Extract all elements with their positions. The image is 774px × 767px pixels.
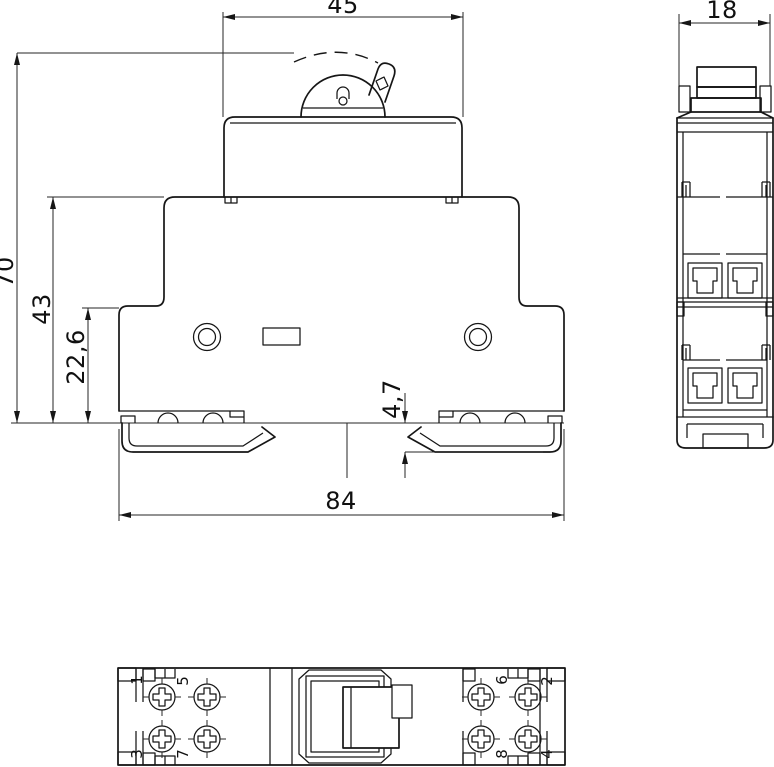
side-body-outline — [677, 118, 773, 417]
mounting-hole-left — [194, 324, 221, 351]
rail-clip-tab — [392, 685, 412, 718]
body-outline — [119, 197, 564, 411]
bottom-view: 1 5 3 7 6 2 8 4 — [118, 668, 565, 765]
terminal-label-1: 1 — [128, 675, 146, 685]
cover-tab-right — [446, 197, 458, 203]
label-window — [263, 328, 300, 345]
dim-label-43: 43 — [28, 293, 56, 325]
drawing-canvas: 45 70 43 22,6 4,7 — [0, 0, 774, 767]
mounting-hole-right — [465, 324, 492, 351]
dim-label-18: 18 — [706, 0, 738, 24]
dim-43: 43 — [28, 197, 164, 423]
side-knob-top — [697, 67, 756, 87]
side-knob-base — [691, 98, 761, 112]
side-rail-clip — [677, 417, 773, 448]
din-clip-right — [408, 411, 564, 452]
terminal-label-8: 8 — [493, 749, 511, 759]
terminal-screw-7 — [188, 720, 226, 758]
toggle-lever-hole — [376, 77, 388, 90]
dim-84: 84 — [119, 429, 564, 521]
side-view: 18 — [677, 0, 773, 448]
toggle-hub — [301, 75, 385, 117]
dim-label-45: 45 — [327, 0, 359, 19]
dim-label-70: 70 — [0, 256, 19, 288]
terminal-screw-5 — [188, 678, 226, 716]
terminal-label-3: 3 — [128, 749, 146, 759]
dimensions-front: 45 70 43 22,6 4,7 — [0, 0, 564, 521]
technical-drawing-page: 45 70 43 22,6 4,7 — [0, 0, 774, 767]
dim-label-4-7: 4,7 — [378, 379, 406, 419]
terminal-label-7: 7 — [174, 749, 192, 759]
front-view — [119, 52, 564, 478]
bottom-rail-clip — [299, 670, 412, 763]
dim-label-22-6: 22,6 — [62, 329, 90, 384]
terminal-label-5: 5 — [174, 676, 192, 686]
side-shoulder-left — [679, 86, 690, 112]
dim-70: 70 — [0, 53, 294, 423]
din-clip-left — [119, 411, 275, 452]
terminal-label-4: 4 — [538, 749, 556, 759]
cover-outline — [224, 117, 462, 197]
toggle-lever — [369, 63, 395, 102]
toggle-axis-hole — [339, 97, 347, 105]
dim-22-6: 22,6 — [62, 308, 119, 423]
rotation-arc — [294, 52, 378, 63]
terminal-label-6: 6 — [493, 675, 511, 685]
dim-4-7: 4,7 — [378, 379, 543, 478]
cover-tab-left — [225, 197, 237, 203]
terminal-label-2: 2 — [538, 676, 556, 686]
dim-45: 45 — [223, 0, 463, 117]
dim-label-84: 84 — [325, 487, 357, 515]
